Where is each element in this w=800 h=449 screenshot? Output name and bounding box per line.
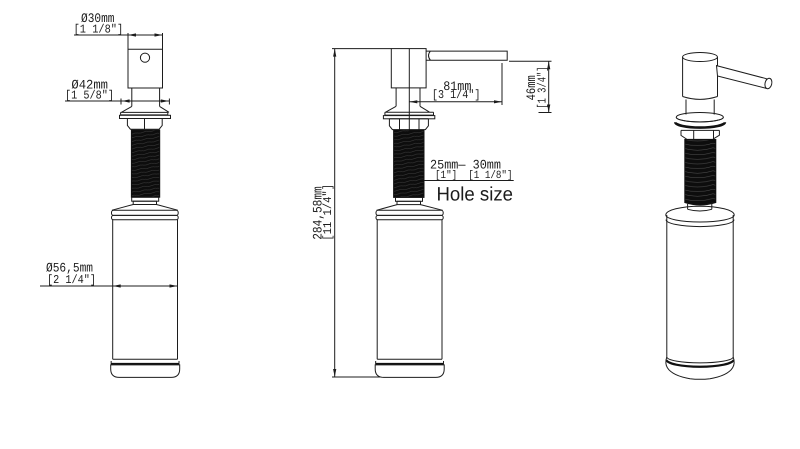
svg-text:[1 5/8"]: [1 5/8"] [65,88,114,102]
svg-text:[3 1/4"]: [3 1/4"] [432,88,481,102]
svg-text:[1 3/4"]: [1 3/4"] [536,66,550,108]
svg-text:[11 1/4"]: [11 1/4"] [321,184,335,241]
svg-text:[2 1/4"]: [2 1/4"] [47,273,96,287]
svg-text:[1"] [1 1/8"]: [1"] [1 1/8"] [435,170,513,182]
svg-text:Hole size: Hole size [437,184,514,206]
